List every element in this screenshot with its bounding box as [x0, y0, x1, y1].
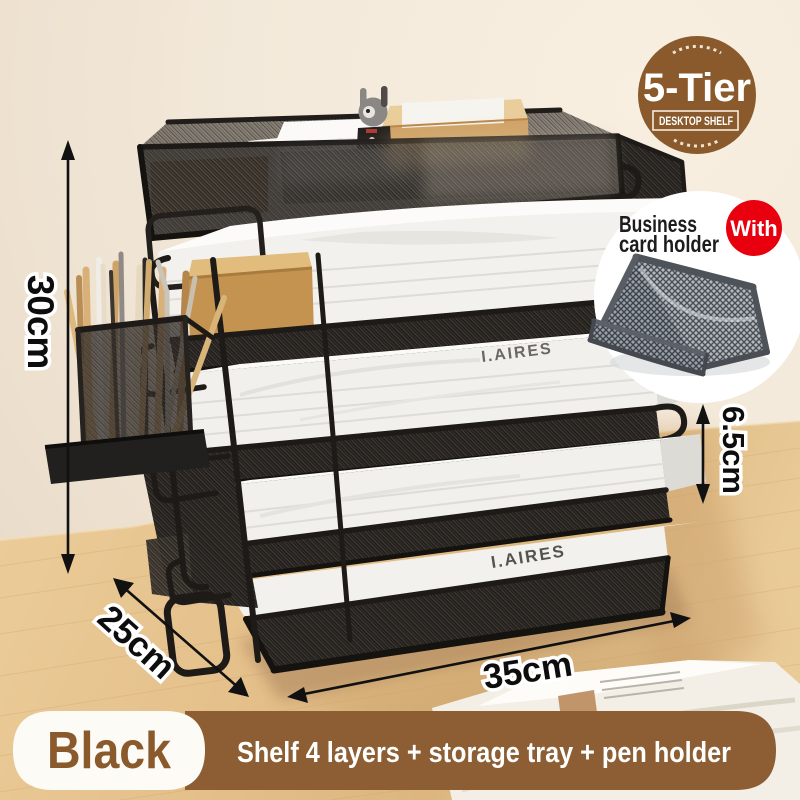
svg-text:With: With — [730, 216, 777, 241]
svg-text:5-Tier: 5-Tier — [643, 66, 751, 110]
svg-text:DESKTOP SHELF: DESKTOP SHELF — [659, 116, 733, 128]
svg-text:Black: Black — [47, 722, 171, 780]
svg-text:Shelf 4 layers + storage tray: Shelf 4 layers + storage tray + pen hold… — [237, 737, 731, 769]
svg-text:30cm: 30cm — [20, 275, 61, 370]
svg-text:card holder: card holder — [619, 231, 719, 257]
svg-text:6.5cm: 6.5cm — [716, 406, 751, 494]
